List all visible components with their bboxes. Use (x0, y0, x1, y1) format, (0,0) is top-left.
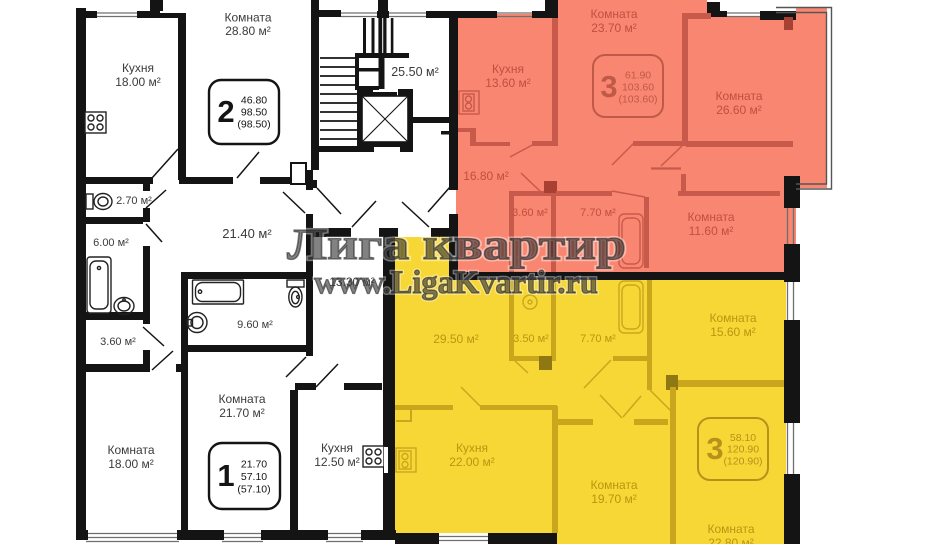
svg-text:2.70 м²: 2.70 м² (116, 195, 152, 207)
svg-text:3: 3 (600, 69, 617, 104)
svg-text:Лига квартир: Лига квартир (287, 220, 626, 269)
svg-text:12.50 м²: 12.50 м² (314, 455, 360, 469)
svg-text:21.40 м²: 21.40 м² (222, 226, 272, 241)
svg-text:21.70: 21.70 (241, 459, 267, 471)
svg-text:13.60 м²: 13.60 м² (485, 76, 531, 90)
svg-text:2: 2 (217, 94, 234, 129)
svg-text:103.60: 103.60 (622, 82, 654, 94)
svg-text:Кухня: Кухня (321, 441, 353, 455)
svg-text:18.00 м²: 18.00 м² (115, 75, 161, 89)
svg-text:6.00 м²: 6.00 м² (93, 237, 129, 249)
svg-text:120.90: 120.90 (727, 444, 759, 456)
svg-text:Комната: Комната (716, 89, 763, 103)
svg-text:Комната: Комната (591, 7, 638, 21)
svg-text:57.10: 57.10 (241, 471, 267, 483)
svg-text:Комната: Комната (708, 522, 755, 536)
svg-text:61.90: 61.90 (625, 70, 651, 82)
svg-text:98.50: 98.50 (241, 107, 267, 119)
svg-text:7.70 м²: 7.70 м² (580, 333, 616, 345)
svg-text:29.50 м²: 29.50 м² (433, 332, 479, 346)
svg-text:(103.60): (103.60) (618, 94, 657, 106)
svg-text:21.70 м²: 21.70 м² (219, 406, 265, 420)
svg-text:3.50 м²: 3.50 м² (513, 333, 549, 345)
svg-text:9.60 м²: 9.60 м² (237, 319, 273, 331)
svg-text:26.60 м²: 26.60 м² (716, 103, 762, 117)
svg-text:3.60 м²: 3.60 м² (512, 207, 548, 219)
svg-text:46.80: 46.80 (241, 95, 267, 107)
svg-text:Комната: Комната (710, 311, 757, 325)
svg-text:23.70 м²: 23.70 м² (591, 21, 637, 35)
svg-text:22.00 м²: 22.00 м² (449, 455, 495, 469)
svg-text:Кухня: Кухня (122, 61, 154, 75)
svg-text:25.50 м²: 25.50 м² (391, 65, 439, 79)
svg-text:(120.90): (120.90) (723, 456, 762, 468)
svg-text:Комната: Комната (225, 11, 272, 25)
svg-text:Комната: Комната (219, 392, 266, 406)
svg-text:Комната: Комната (108, 443, 155, 457)
svg-text:3: 3 (706, 431, 723, 466)
svg-text:(98.50): (98.50) (237, 119, 270, 131)
svg-text:Комната: Комната (591, 478, 638, 492)
svg-text:3.60 м²: 3.60 м² (100, 336, 136, 348)
svg-text:58.10: 58.10 (730, 432, 756, 444)
svg-text:28.80 м²: 28.80 м² (225, 24, 271, 38)
svg-text:16.80 м²: 16.80 м² (463, 169, 509, 183)
svg-text:(57.10): (57.10) (237, 484, 270, 496)
svg-text:Комната: Комната (688, 210, 735, 224)
svg-text:1: 1 (217, 458, 234, 493)
svg-text:18.00 м²: 18.00 м² (108, 457, 154, 471)
svg-text:11.60 м²: 11.60 м² (689, 224, 734, 238)
svg-text:22.80 м²: 22.80 м² (708, 536, 754, 544)
svg-text:Кухня: Кухня (456, 441, 488, 455)
svg-text:19.70 м²: 19.70 м² (591, 492, 637, 506)
svg-text:13.30 м²: 13.30 м² (329, 275, 375, 289)
svg-text:Кухня: Кухня (492, 62, 524, 76)
svg-text:15.60 м²: 15.60 м² (710, 325, 756, 339)
svg-text:7.70 м²: 7.70 м² (580, 207, 616, 219)
